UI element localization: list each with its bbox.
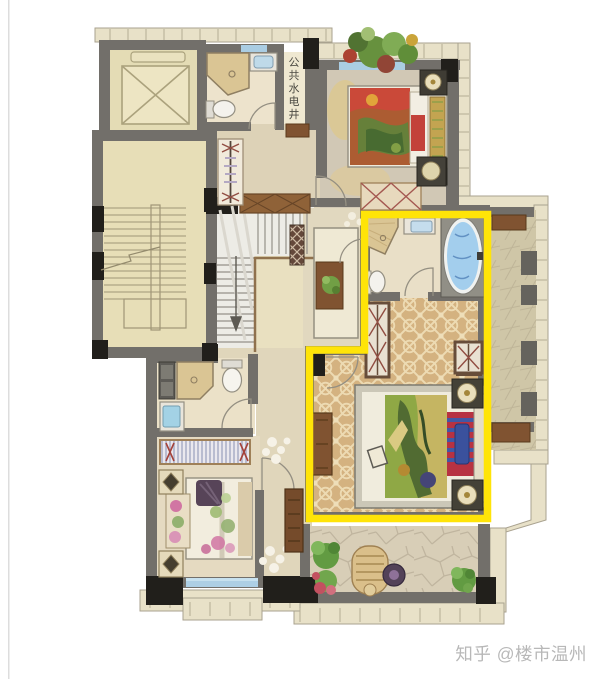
svg-text:知乎 @楼市温州: 知乎 @楼市温州: [455, 644, 587, 664]
